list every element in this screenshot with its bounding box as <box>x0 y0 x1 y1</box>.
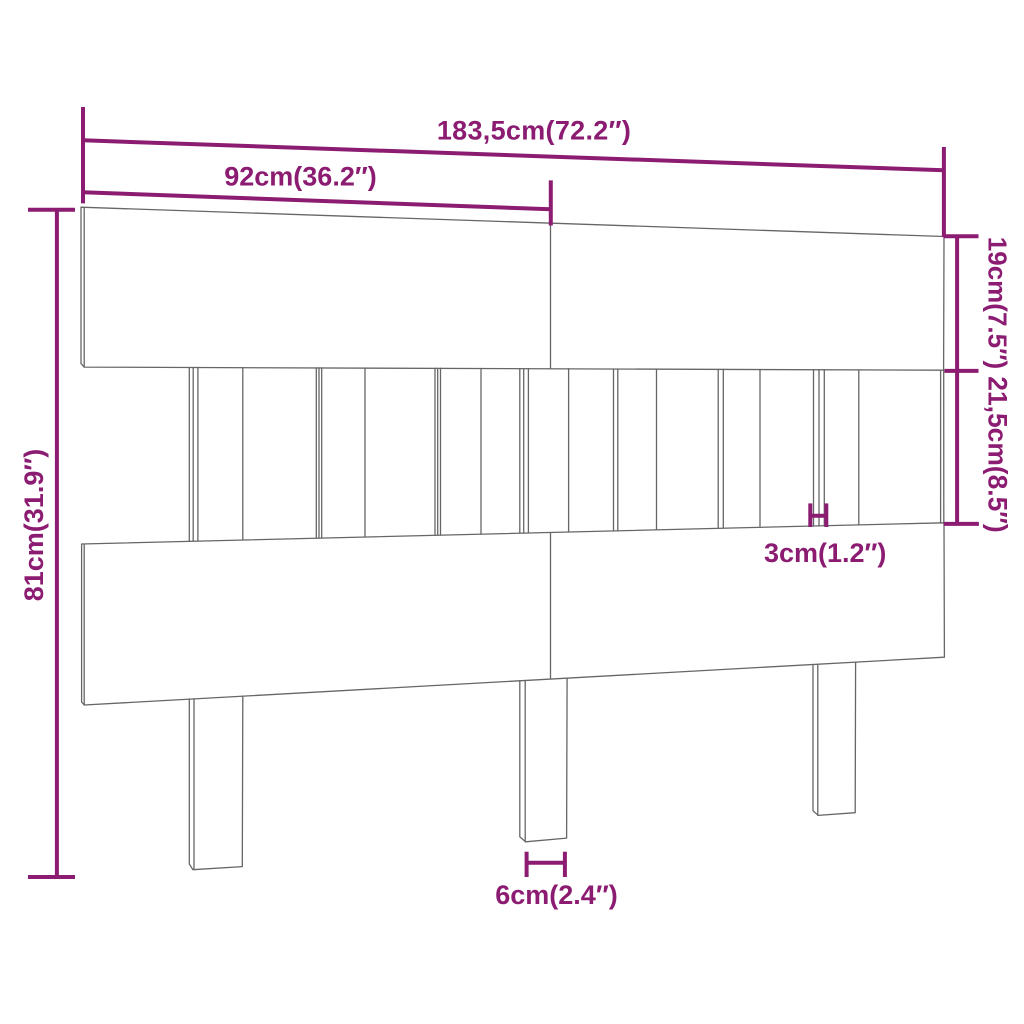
svg-text:19cm(7.5″): 19cm(7.5″) <box>983 237 1013 369</box>
svg-text:21,5cm(8.5″): 21,5cm(8.5″) <box>983 376 1013 532</box>
svg-text:183,5cm(72.2″): 183,5cm(72.2″) <box>437 116 631 146</box>
svg-text:92cm(36.2″): 92cm(36.2″) <box>224 162 377 192</box>
svg-text:81cm(31.9″): 81cm(31.9″) <box>19 449 49 602</box>
svg-text:6cm(2.4″): 6cm(2.4″) <box>495 880 618 910</box>
svg-text:3cm(1.2″): 3cm(1.2″) <box>764 538 887 568</box>
